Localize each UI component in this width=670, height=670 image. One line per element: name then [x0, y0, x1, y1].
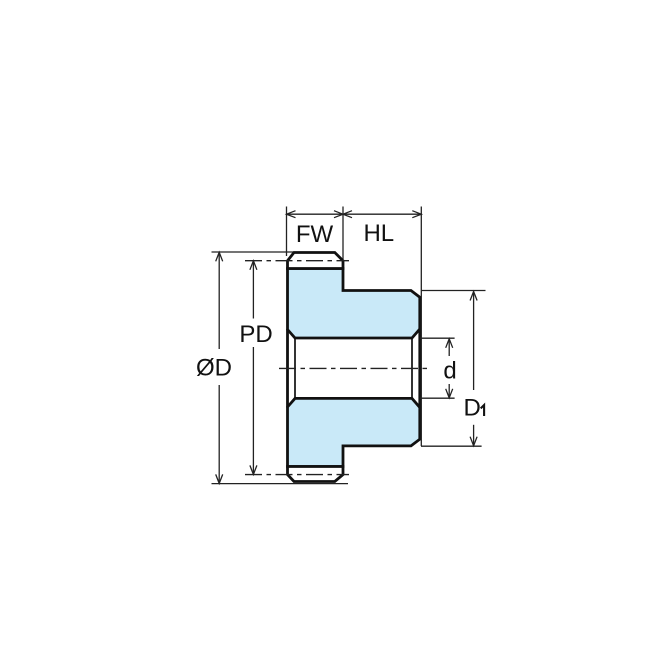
svg-text:D: D	[464, 395, 481, 422]
svg-text:PD: PD	[239, 321, 272, 348]
svg-text:ØD: ØD	[196, 355, 232, 382]
svg-text:HL: HL	[363, 220, 394, 247]
svg-text:d: d	[443, 358, 456, 385]
svg-text:FW: FW	[296, 221, 334, 248]
